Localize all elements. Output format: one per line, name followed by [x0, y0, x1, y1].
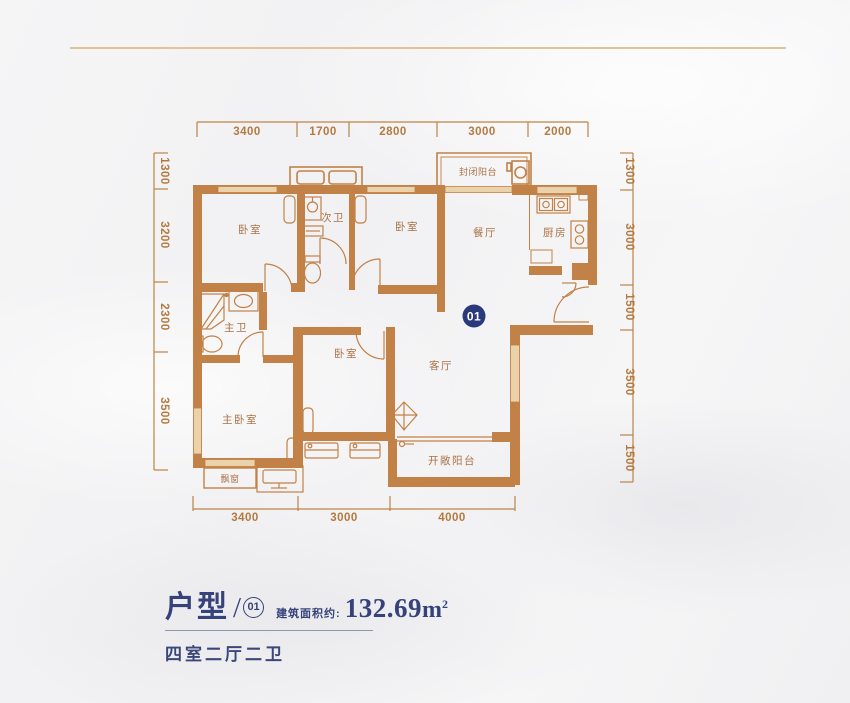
footer-divider [165, 630, 373, 631]
dim-top-2: 1700 [309, 126, 337, 138]
area-unit-m: m [422, 597, 442, 623]
top-bay-window-icon [290, 167, 362, 188]
second-bath-shelf-icon [303, 226, 323, 236]
kitchen-sink-icon [537, 196, 570, 213]
shaft-symbol-icon [392, 402, 417, 430]
unit-title-row: 户型 / 01 建筑面积约: 132.69 m2 [165, 582, 448, 626]
unit-badge: 01 [463, 305, 486, 328]
layout-description: 四室二厅二卫 [165, 640, 448, 665]
unit-number-badge: 01 [243, 597, 264, 618]
bedroom2-door [352, 259, 380, 287]
area-unit-sup: 2 [442, 597, 448, 611]
shower-icon [201, 294, 224, 329]
dim-bottom-1: 3400 [231, 512, 259, 524]
area-unit: m2 [422, 597, 448, 624]
dim-right-5: 1500 [623, 444, 635, 472]
master-bedroom-door [238, 332, 263, 357]
second-bath-door [320, 238, 346, 264]
area-label: 建筑面积约: [276, 605, 341, 621]
washing-machine-icon [507, 161, 529, 184]
dim-top-5: 2000 [544, 126, 572, 138]
dim-top-4: 3000 [468, 126, 496, 138]
area-value: 132.69 [345, 593, 422, 624]
second-bath-toilet-icon [305, 256, 321, 283]
dim-left-2: 3200 [158, 221, 170, 249]
room-label-open-balcony: 开敞阳台 [428, 454, 476, 467]
dim-right-4: 3500 [623, 368, 635, 396]
stove-icon [571, 221, 588, 248]
unit-badge-label: 01 [467, 310, 481, 324]
bedroom3-window-units [305, 443, 380, 458]
unit-info-block: 户型 / 01 建筑面积约: 132.69 m2 四室二厅二卫 [165, 582, 448, 665]
dim-bottom-2: 3000 [330, 512, 358, 524]
dim-left-1: 1300 [158, 157, 170, 185]
room-label-master-bath: 主卫 [224, 322, 248, 334]
room-label-master-bedroom: 主卧室 [222, 413, 258, 426]
dim-bottom-3: 4000 [438, 512, 466, 524]
dim-top-3: 2800 [379, 126, 407, 138]
dim-top-1: 3400 [233, 126, 261, 138]
dim-right-1: 1300 [623, 157, 635, 185]
desk-unit-icon [257, 466, 303, 492]
dim-right-3: 1500 [623, 293, 635, 321]
dim-right-2: 3000 [623, 223, 635, 251]
balcony-rail [397, 437, 492, 447]
doors [238, 238, 589, 359]
room-label-enclosed-balcony: 封闭阳台 [459, 166, 497, 177]
room-label-bedroom-top-left: 卧室 [238, 223, 262, 236]
room-label-bedroom-top-mid: 卧室 [395, 220, 419, 233]
unit-number: 01 [247, 601, 259, 613]
slash-separator: / [233, 592, 241, 625]
bedroom1-door [265, 264, 292, 291]
room-label-kitchen: 厨房 [543, 226, 567, 239]
bedroom3-door [356, 331, 384, 359]
master-bath-sink-icon [224, 291, 258, 311]
dim-left-3: 2300 [158, 303, 170, 331]
unit-type-label: 户型 [165, 582, 229, 626]
second-bath-vanity-icon [304, 197, 321, 220]
room-label-living: 客厅 [429, 359, 453, 372]
entry-door [554, 287, 589, 322]
room-label-second-bathroom: 次卫 [321, 211, 345, 224]
room-label-dining: 餐厅 [473, 226, 497, 239]
room-label-bedroom-mid: 卧室 [334, 347, 358, 360]
room-label-bay-window: 飘窗 [220, 473, 239, 484]
dim-left-4: 3500 [158, 397, 170, 425]
